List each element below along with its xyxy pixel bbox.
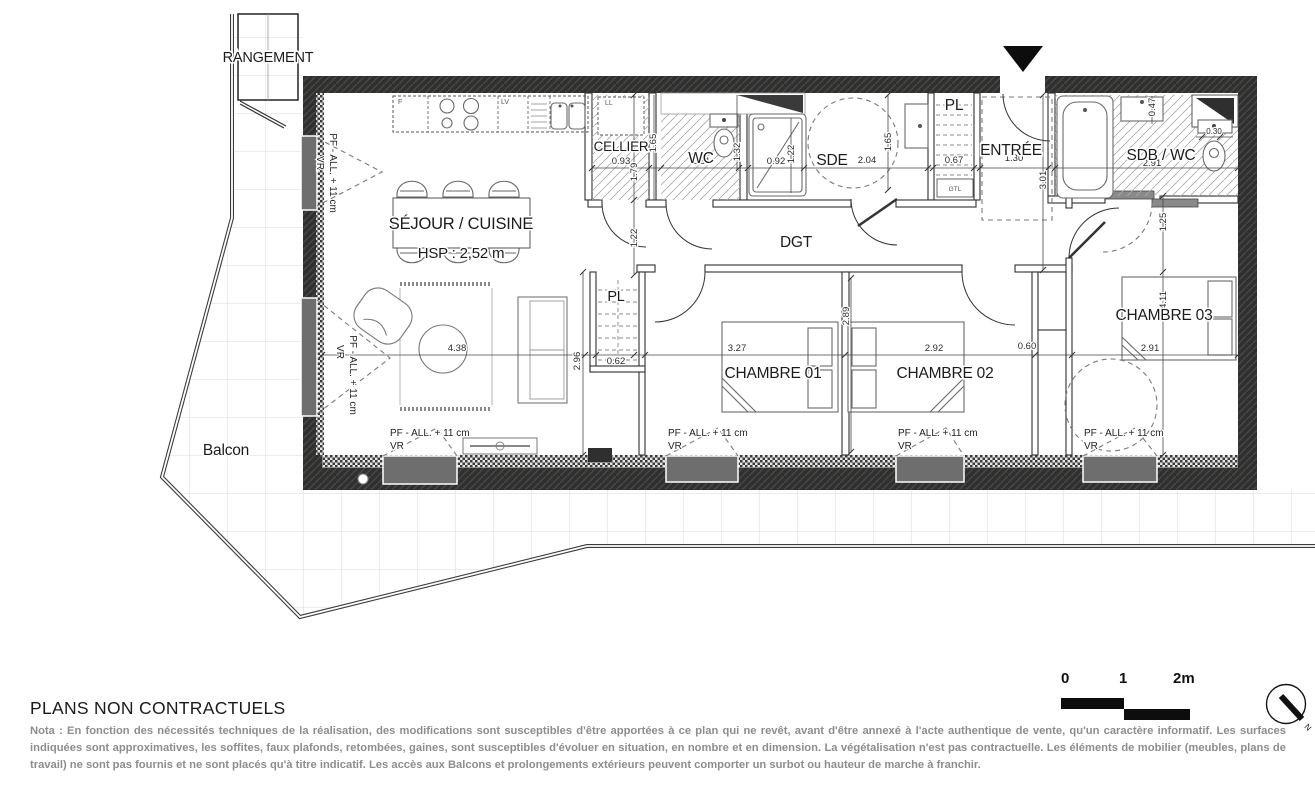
scale-label-2m: 2m <box>1173 670 1195 687</box>
dim: 1.22 <box>629 229 640 248</box>
dim: 0.60 <box>1018 341 1037 352</box>
scale-bar: 0 1 2m <box>1055 670 1215 726</box>
scale-label-0: 0 <box>1061 670 1069 687</box>
dim: 0.47 <box>1147 98 1158 117</box>
dim: 1.65 <box>648 134 659 153</box>
scale-bar-segment-2 <box>1124 709 1190 720</box>
window-label-vr: VR <box>314 156 325 170</box>
window-label: PF - ALL. + 11 cm <box>668 428 748 439</box>
window-ch1 <box>666 456 738 482</box>
shower <box>749 114 806 196</box>
room-label-sejour: SÉJOUR / CUISINE <box>389 214 534 233</box>
room-label-dgt: DGT <box>780 234 813 251</box>
washer-label: LL <box>605 100 613 107</box>
dim: 0.92 <box>767 156 786 167</box>
window-label: PF - ALL. + 11 cm <box>898 428 978 439</box>
dim: 2.96 <box>572 352 583 371</box>
wall-top-right <box>1045 76 1257 93</box>
dim: 3.01 <box>1038 171 1049 190</box>
dim: 0.93 <box>612 156 631 167</box>
dishwasher-label: LV <box>501 99 509 106</box>
room-label-ch1: CHAMBRE 01 <box>724 365 821 382</box>
fridge-label: F <box>398 99 402 106</box>
north-label: N <box>1303 722 1314 732</box>
north-arrow: N <box>1258 676 1315 740</box>
sliding-door-panel-2 <box>1152 199 1198 207</box>
dim: 0.62 <box>607 356 626 367</box>
door-leaf-ch3 <box>1069 222 1105 258</box>
dim: 2.91 <box>1141 343 1160 354</box>
window-label-vr: VR <box>668 441 682 452</box>
sofa <box>518 297 567 403</box>
door-leaf-sde <box>858 199 897 226</box>
room-label-sdb: SDB / WC <box>1126 147 1195 164</box>
dim: 4.38 <box>448 343 467 354</box>
dim: 0.67 <box>945 155 964 166</box>
room-label-sde: SDE <box>816 152 847 169</box>
entrance-arrow-icon <box>1003 46 1043 72</box>
washer: LL <box>598 97 644 135</box>
wall-marker <box>358 474 368 484</box>
floorplan-drawing: RANGEMENT Balcon <box>0 0 1315 660</box>
window-left-1 <box>301 136 317 210</box>
room-label-cellier: CELLIER <box>594 139 649 154</box>
tv-stand <box>463 438 537 454</box>
room-label-rangement: RANGEMENT <box>223 50 314 66</box>
plan-nota-text: Nota : En fonction des nécessités techni… <box>30 723 1286 774</box>
window-label-vr: VR <box>1084 441 1098 452</box>
closet-top: GTL <box>936 105 973 197</box>
door-arc-ch2 <box>962 272 1015 325</box>
dim: 1.32 <box>732 143 743 162</box>
wall-right <box>1238 76 1257 490</box>
window-ch3 <box>1083 456 1157 482</box>
gtl-label: GTL <box>949 186 962 193</box>
room-label-entree: ENTRÉE <box>980 142 1042 159</box>
window-label-vr: VR <box>390 441 404 452</box>
door-clearance-sdb <box>1103 203 1152 252</box>
dim: 1.22 <box>786 145 797 164</box>
kitchen-counter: F LV <box>393 96 588 132</box>
dim: 2.04 <box>858 155 877 166</box>
plan-disclaimer-title: PLANS NON CONTRACTUELS <box>30 698 286 719</box>
window-left-2 <box>301 298 317 416</box>
room-label-pl-top: PL <box>945 97 964 114</box>
dim: 1.25 <box>1158 213 1169 232</box>
door-arc-ch1 <box>655 272 705 322</box>
dim: 1.79 <box>629 163 640 182</box>
room-label-ch2: CHAMBRE 02 <box>896 365 993 382</box>
room-label-wc: WC <box>688 150 713 167</box>
window-label: PF - ALL. + 11 cm <box>347 335 358 415</box>
room-label-balcon: Balcon <box>203 442 249 459</box>
soffit <box>661 93 805 114</box>
window-label: PF - ALL. + 11 cm <box>1084 428 1164 439</box>
wall-stub <box>588 448 612 462</box>
scale-label-1: 1 <box>1119 670 1127 687</box>
window-label-vr: VR <box>898 441 912 452</box>
vanity-sde <box>905 104 928 148</box>
window-ch2 <box>896 456 964 482</box>
window-sejour <box>383 456 457 484</box>
window-label: PF - ALL. + 11 cm <box>390 428 470 439</box>
door-arc-wc <box>666 203 712 249</box>
room-label-hsp: HSP : 2,52 m <box>418 245 505 262</box>
window-label-vr: VR <box>334 345 345 359</box>
door-arc-sde <box>851 199 897 245</box>
window-label: PF - ALL. + 11 cm <box>327 133 338 213</box>
bathtub <box>1057 96 1113 198</box>
wall-top-left <box>303 76 1000 93</box>
room-label-ch3: CHAMBRE 03 <box>1115 307 1212 324</box>
dim: 2.92 <box>925 343 944 354</box>
dim: 3.27 <box>728 343 747 354</box>
dim: 1.65 <box>883 133 894 152</box>
scale-bar-segment-1 <box>1061 698 1124 709</box>
dim: 0.30 <box>1206 127 1222 136</box>
dim: 2.89 <box>841 307 852 326</box>
room-label-pl-low: PL <box>607 289 624 305</box>
floorplan-page: RANGEMENT Balcon <box>0 0 1315 800</box>
